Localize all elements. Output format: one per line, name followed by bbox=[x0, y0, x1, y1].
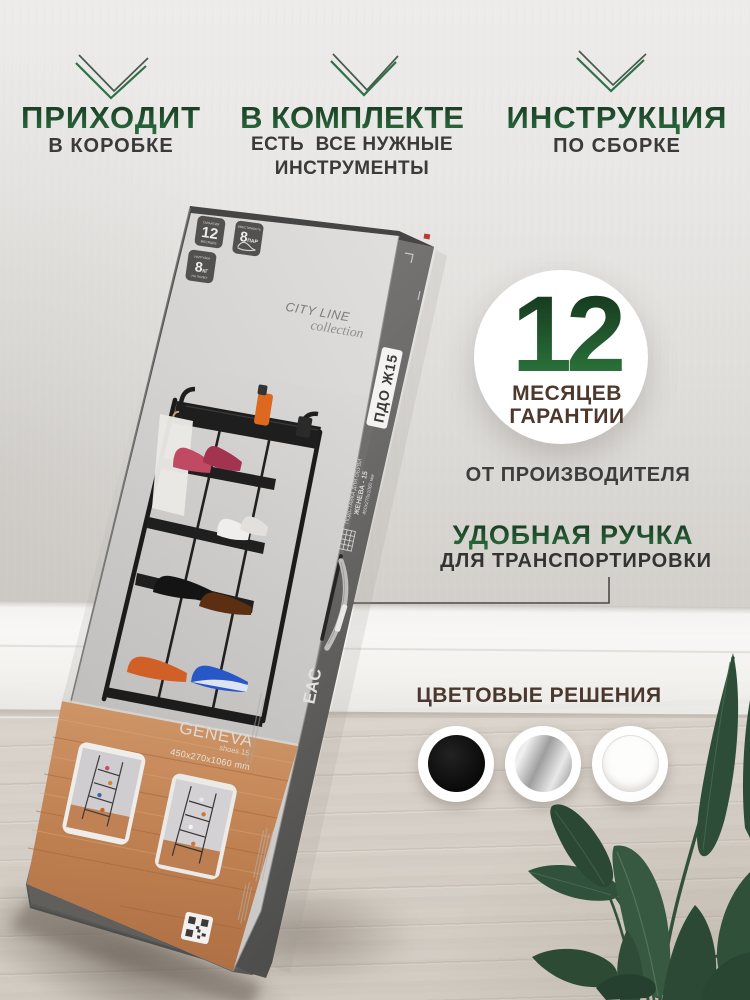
svg-text:ГАРАНТИИ: ГАРАНТИИ bbox=[509, 405, 624, 428]
svg-text:12: 12 bbox=[512, 273, 622, 394]
svg-text:МЕСЯЦЕВ: МЕСЯЦЕВ bbox=[512, 382, 622, 405]
